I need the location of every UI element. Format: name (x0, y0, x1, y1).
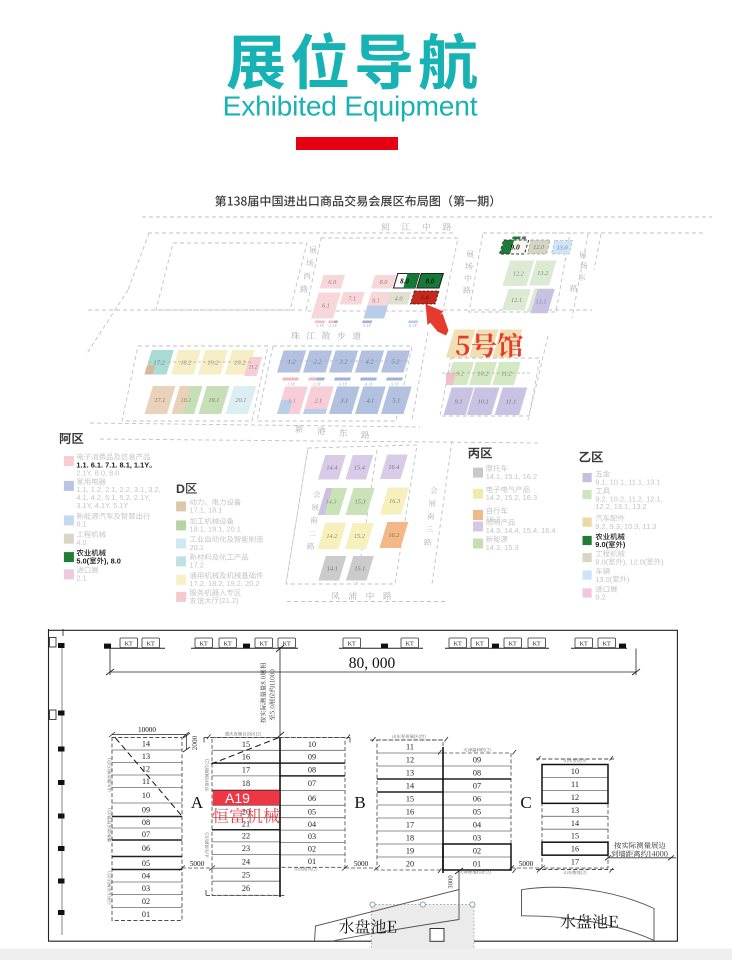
svg-text:14: 14 (142, 740, 150, 749)
svg-text:3.1Y: 3.1Y (363, 323, 372, 328)
svg-text:9.2, 9.3, 10.3, 11.3: 9.2, 9.3, 10.3, 11.3 (595, 522, 656, 531)
svg-text:8.0: 8.0 (400, 278, 409, 286)
svg-text:12: 12 (571, 793, 579, 802)
svg-text:07: 07 (142, 830, 150, 839)
svg-text:KT: KT (509, 640, 517, 647)
svg-text:17.2: 17.2 (154, 359, 166, 366)
svg-text:6.1: 6.1 (322, 303, 330, 310)
svg-text:05: 05 (473, 808, 481, 817)
svg-text:1.1Y: 1.1Y (287, 381, 295, 386)
svg-text:22: 22 (242, 832, 250, 841)
svg-text:8.1: 8.1 (372, 298, 380, 305)
svg-text:), 12.0(: ), 12.0( (623, 557, 647, 566)
svg-text:18: 18 (406, 834, 414, 843)
svg-text:7.1: 7.1 (348, 295, 356, 302)
svg-text:16: 16 (242, 753, 250, 762)
svg-text:17.1, 18.1: 17.1, 18.1 (190, 506, 223, 515)
svg-text:20.1: 20.1 (190, 543, 204, 552)
svg-text:3.1Y, 4.1Y, 5.1Y: 3.1Y, 4.1Y, 5.1Y (76, 501, 128, 510)
svg-text:10000: 10000 (138, 726, 156, 734)
svg-text:KT: KT (283, 640, 291, 647)
svg-text:A: A (191, 793, 204, 812)
svg-text:18: 18 (242, 779, 250, 788)
svg-text:15.4: 15.4 (354, 464, 365, 471)
svg-text:KT: KT (580, 640, 588, 647)
svg-text:17: 17 (406, 821, 414, 830)
svg-text:06: 06 (308, 794, 316, 803)
svg-text:05: 05 (308, 807, 316, 816)
svg-text:09: 09 (473, 756, 481, 765)
svg-text:08: 08 (142, 818, 150, 827)
svg-text:13.0: 13.0 (556, 244, 568, 251)
svg-text:14.4: 14.4 (326, 464, 337, 471)
svg-text:9.1, 10.1, 11.1, 13.1: 9.1, 10.1, 11.1, 13.1 (595, 477, 660, 486)
svg-text:8.0: 8.0 (380, 279, 389, 286)
svg-text:KT: KT (224, 640, 232, 647)
svg-text:KT: KT (200, 640, 208, 647)
svg-text:4.1Y: 4.1Y (365, 381, 373, 386)
svg-text:4.2: 4.2 (366, 359, 375, 366)
svg-text:08: 08 (473, 769, 481, 778)
svg-text:10.1: 10.1 (478, 398, 489, 405)
svg-text:9.0: 9.0 (510, 243, 520, 252)
svg-text:1.1: 1.1 (288, 398, 296, 405)
svg-text:05: 05 (142, 859, 150, 868)
svg-text:KT: KT (533, 640, 541, 647)
svg-text:17.2: 17.2 (190, 561, 204, 570)
svg-text:14.3, 15.3: 14.3, 15.3 (486, 543, 519, 552)
svg-text:3.2: 3.2 (339, 359, 349, 366)
svg-text:04: 04 (473, 821, 481, 830)
svg-text:19.2: 19.2 (207, 359, 219, 366)
svg-text:5000: 5000 (519, 860, 534, 868)
svg-text:15: 15 (406, 795, 414, 804)
svg-text:3.1: 3.1 (339, 397, 348, 404)
svg-text:11: 11 (142, 777, 150, 786)
svg-text:15: 15 (571, 832, 579, 841)
svg-text:06: 06 (473, 795, 481, 804)
svg-text:09: 09 (142, 806, 150, 815)
svg-text:26: 26 (242, 884, 250, 893)
svg-text:5000: 5000 (354, 860, 369, 868)
svg-text:14.2, 15.2, 16.3: 14.2, 15.2, 16.3 (486, 493, 537, 502)
svg-text:15: 15 (242, 740, 250, 749)
svg-text:4.0: 4.0 (76, 538, 86, 547)
svg-text:9.1: 9.1 (455, 398, 463, 405)
svg-text:Exhibited Equipment: Exhibited Equipment (223, 90, 478, 122)
svg-text:B: B (354, 793, 365, 812)
svg-text:01: 01 (142, 910, 150, 919)
svg-text:2.1: 2.1 (314, 397, 322, 404)
svg-text:KT: KT (348, 640, 356, 647)
svg-text:02: 02 (308, 845, 316, 854)
svg-text:D: D (176, 482, 185, 496)
svg-text:6.0: 6.0 (328, 279, 337, 286)
svg-text:KT: KT (603, 640, 611, 647)
svg-text:07: 07 (473, 782, 481, 791)
svg-text:8.0: 8.0 (426, 278, 435, 286)
svg-text:1.1Y: 1.1Y (316, 323, 325, 328)
svg-text:09: 09 (308, 753, 316, 762)
svg-text:01: 01 (473, 860, 481, 869)
svg-text:10.2: 10.2 (477, 371, 489, 378)
svg-text:2.1Y: 2.1Y (313, 381, 321, 386)
svg-text:12.2: 12.2 (513, 270, 525, 277)
svg-text:17.2, 18.2, 19.2, 20.2: 17.2, 18.2, 19.2, 20.2 (190, 579, 260, 588)
svg-text:10: 10 (571, 767, 579, 776)
svg-text:16: 16 (571, 845, 579, 854)
svg-text:24: 24 (242, 857, 250, 866)
svg-text:KT: KT (147, 640, 155, 647)
svg-text:5000: 5000 (190, 860, 205, 868)
svg-text:8.1: 8.1 (76, 520, 86, 529)
svg-text:10: 10 (142, 791, 150, 800)
svg-text:14.3, 14.4, 15.4, 16.4: 14.3, 14.4, 15.4, 16.4 (486, 526, 556, 535)
svg-text:15.3: 15.3 (355, 499, 366, 506)
svg-text:C: C (520, 793, 531, 812)
svg-text:13: 13 (406, 769, 414, 778)
svg-text:08: 08 (308, 765, 316, 774)
svg-text:25: 25 (242, 871, 250, 880)
svg-text:19.1: 19.1 (208, 397, 219, 404)
svg-text:2.1Y: 2.1Y (329, 323, 338, 328)
svg-text:02: 02 (473, 847, 481, 856)
svg-text:2.1: 2.1 (76, 574, 86, 583)
svg-text:KT: KT (260, 640, 268, 647)
svg-text:02: 02 (142, 897, 150, 906)
svg-text:16.4: 16.4 (388, 464, 399, 471)
svg-text:16: 16 (406, 808, 414, 817)
svg-text:KT: KT (125, 640, 133, 647)
svg-text:20.1: 20.1 (235, 397, 246, 404)
svg-text:18.2: 18.2 (180, 359, 192, 366)
svg-text:12.0: 12.0 (533, 244, 545, 251)
svg-text:17.1: 17.1 (154, 397, 165, 404)
svg-text:12: 12 (142, 765, 150, 774)
svg-text:14: 14 (571, 819, 579, 828)
svg-text:12: 12 (406, 756, 414, 765)
svg-text:5.0: 5.0 (421, 295, 430, 302)
svg-text:03: 03 (308, 832, 316, 841)
svg-text:5.1Y: 5.1Y (391, 381, 399, 386)
svg-text:13: 13 (571, 806, 579, 815)
svg-text:13.0(: 13.0( (595, 575, 612, 584)
svg-text:9.2: 9.2 (456, 371, 465, 378)
svg-text:14.1, 15.1, 16.2: 14.1, 15.1, 16.2 (486, 472, 537, 481)
svg-text:18.1: 18.1 (180, 397, 191, 404)
svg-text:14: 14 (406, 782, 414, 791)
svg-text:11.1: 11.1 (506, 398, 517, 405)
svg-text:KT: KT (476, 640, 484, 647)
svg-text:23: 23 (242, 844, 250, 853)
svg-text:5.0(: 5.0( (76, 556, 89, 565)
svg-text:12.1: 12.1 (511, 297, 522, 304)
svg-text:04: 04 (308, 820, 316, 829)
svg-text:KT: KT (454, 640, 462, 647)
svg-text:01: 01 (308, 857, 316, 866)
svg-text:21: 21 (242, 820, 250, 829)
svg-text:A19: A19 (225, 790, 250, 806)
svg-text:19: 19 (406, 847, 414, 856)
svg-text:15.2: 15.2 (354, 533, 366, 540)
svg-text:1.2: 1.2 (288, 359, 297, 366)
svg-text:3.1Y: 3.1Y (339, 381, 347, 386)
svg-text:80, 000: 80, 000 (349, 655, 396, 672)
svg-text:14.2: 14.2 (326, 533, 338, 540)
svg-text:5.1: 5.1 (392, 397, 400, 404)
svg-text:06: 06 (142, 844, 150, 853)
svg-text:9.0(: 9.0( (595, 557, 608, 566)
svg-text:11: 11 (571, 780, 579, 789)
svg-text:13.1: 13.1 (535, 299, 546, 306)
svg-text:03: 03 (473, 834, 481, 843)
svg-text:07: 07 (308, 779, 316, 788)
svg-text:2.2: 2.2 (314, 359, 323, 366)
svg-text:KT: KT (406, 640, 414, 647)
svg-text:21.2: 21.2 (249, 366, 258, 371)
svg-text:13.2: 13.2 (537, 270, 549, 277)
svg-text:): ) (627, 575, 629, 584)
svg-text:04: 04 (142, 872, 150, 881)
svg-text:15.1: 15.1 (354, 566, 365, 573)
svg-text:9.0(: 9.0( (595, 540, 608, 549)
svg-text:14.3: 14.3 (325, 499, 336, 506)
svg-text:20.2: 20.2 (234, 359, 246, 366)
svg-text:4.1: 4.1 (366, 397, 374, 404)
svg-text:03: 03 (142, 884, 150, 893)
svg-text:12.2, 13.1, 13.2: 12.2, 13.1, 13.2 (595, 502, 646, 511)
svg-text:10: 10 (308, 740, 316, 749)
svg-text:11: 11 (406, 743, 414, 752)
svg-text:13: 13 (142, 752, 150, 761)
svg-text:): ) (661, 557, 663, 566)
svg-text:16.3: 16.3 (389, 498, 400, 505)
svg-text:2.1Y, 6.0, 8.0: 2.1Y, 6.0, 8.0 (76, 468, 119, 477)
svg-text:(21.2): (21.2) (219, 596, 238, 605)
svg-text:14.1: 14.1 (327, 566, 338, 573)
svg-text:9.2: 9.2 (595, 593, 605, 602)
svg-text:17: 17 (242, 765, 250, 774)
svg-text:16.2: 16.2 (388, 532, 400, 539)
svg-text:): ) (623, 540, 626, 549)
svg-text:11.2: 11.2 (501, 371, 512, 378)
svg-text:6.1Y: 6.1Y (409, 323, 418, 328)
svg-text:17: 17 (571, 858, 579, 867)
svg-text:), 8.0: ), 8.0 (104, 556, 121, 565)
svg-text:18.1, 19.1, 20.1: 18.1, 19.1, 20.1 (190, 525, 241, 534)
svg-text:16.2: 16.2 (486, 514, 500, 523)
svg-text:4.0: 4.0 (395, 295, 404, 302)
svg-text:20: 20 (406, 860, 414, 869)
svg-text:5.2: 5.2 (392, 359, 401, 366)
